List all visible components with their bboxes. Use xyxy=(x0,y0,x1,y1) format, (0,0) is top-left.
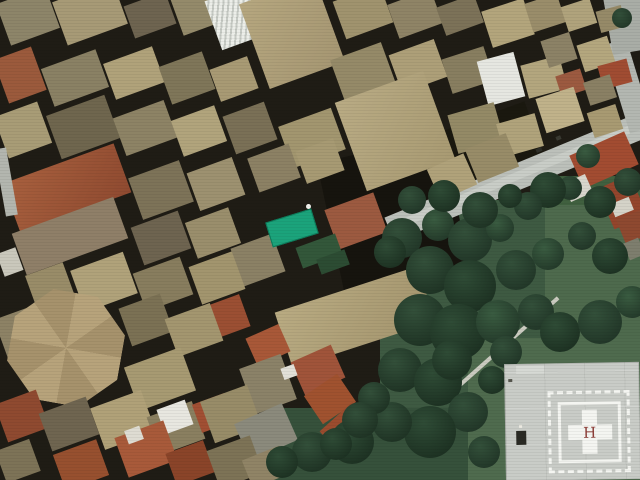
building xyxy=(387,0,443,39)
building xyxy=(436,0,484,36)
building xyxy=(0,101,52,158)
helipad-pad-strip xyxy=(516,365,544,373)
building xyxy=(0,439,41,480)
tree xyxy=(432,340,472,380)
helipad-pad-mark xyxy=(508,379,512,382)
tree xyxy=(342,402,378,438)
tree xyxy=(532,238,564,270)
building xyxy=(239,0,345,89)
tree xyxy=(478,366,506,394)
tree xyxy=(614,168,640,196)
tree xyxy=(576,144,600,168)
building xyxy=(124,0,177,38)
building xyxy=(333,0,394,39)
building xyxy=(0,47,47,104)
tree xyxy=(592,238,628,274)
tree xyxy=(428,180,460,212)
tree xyxy=(496,250,536,290)
helipad-letter: H xyxy=(561,404,619,460)
car xyxy=(555,135,561,141)
building-white xyxy=(477,52,526,106)
tree xyxy=(468,436,500,468)
tree xyxy=(398,186,426,214)
building xyxy=(222,102,277,155)
tree xyxy=(498,184,522,208)
tree xyxy=(266,446,298,478)
building xyxy=(159,51,216,104)
satellite-map-view[interactable]: H xyxy=(0,0,640,480)
building xyxy=(113,100,177,156)
tree xyxy=(578,300,622,344)
building xyxy=(131,211,192,266)
tree xyxy=(374,236,406,268)
building xyxy=(171,105,227,156)
building xyxy=(561,0,598,32)
building xyxy=(187,157,246,211)
building xyxy=(52,0,128,46)
building xyxy=(0,0,60,46)
tree xyxy=(568,222,596,250)
tree xyxy=(584,186,616,218)
tree xyxy=(404,406,456,458)
tree xyxy=(462,192,498,228)
helipad-side-object xyxy=(516,431,526,445)
helipad: H xyxy=(504,362,640,480)
marker-dot xyxy=(306,204,311,209)
building xyxy=(209,56,258,102)
tree xyxy=(616,286,640,318)
tree xyxy=(612,8,632,28)
tree xyxy=(540,312,580,352)
helipad-inner-square: H xyxy=(558,401,622,463)
building xyxy=(128,160,194,220)
building xyxy=(103,46,165,99)
